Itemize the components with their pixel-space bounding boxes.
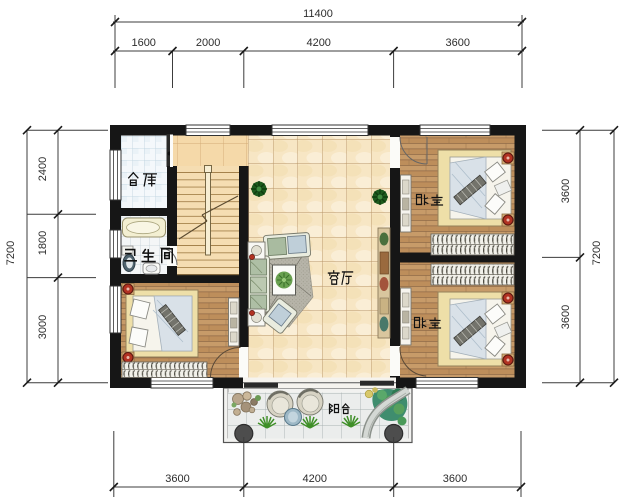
svg-text:3000: 3000 — [37, 315, 49, 339]
svg-text:1600: 1600 — [131, 37, 155, 49]
svg-text:3600: 3600 — [443, 473, 467, 485]
svg-text:2400: 2400 — [37, 157, 49, 181]
svg-text:4200: 4200 — [306, 37, 330, 49]
svg-text:4200: 4200 — [303, 473, 327, 485]
svg-text:3600: 3600 — [446, 37, 470, 49]
svg-text:2000: 2000 — [196, 37, 220, 49]
svg-text:7200: 7200 — [5, 241, 17, 265]
svg-text:7200: 7200 — [591, 241, 603, 265]
svg-text:3600: 3600 — [560, 305, 572, 329]
svg-text:1800: 1800 — [37, 231, 49, 255]
svg-text:3600: 3600 — [165, 473, 189, 485]
svg-text:11400: 11400 — [303, 8, 333, 20]
svg-text:3600: 3600 — [560, 179, 572, 203]
